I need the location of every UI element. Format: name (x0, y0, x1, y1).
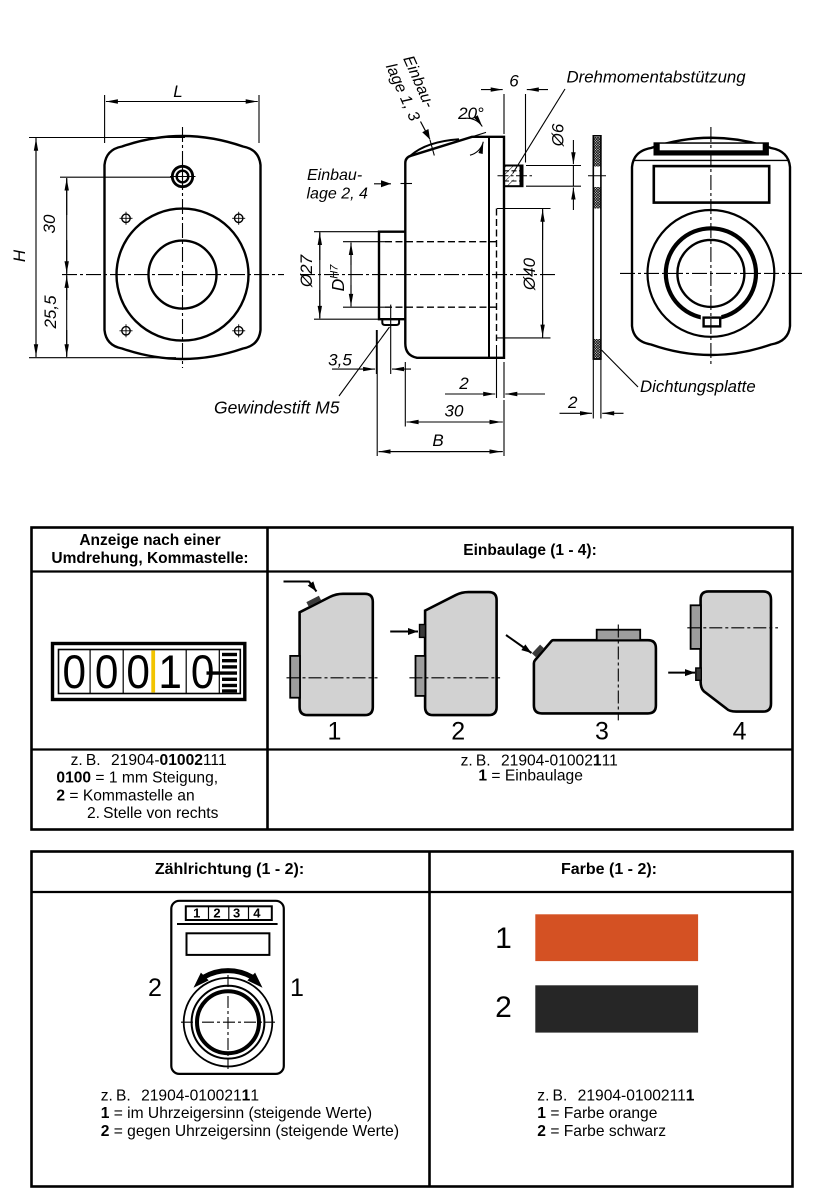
svg-text:Ø40: Ø40 (520, 257, 539, 291)
svg-text:3,5: 3,5 (328, 351, 352, 370)
svg-text:Drehmomentabstützung: Drehmomentabstützung (567, 68, 747, 87)
svg-text:1: 1 (193, 906, 200, 921)
svg-text:0: 0 (95, 647, 119, 699)
svg-text:z. B. 21904-01002111: z. B. 21904-01002111 (71, 752, 227, 769)
svg-text:25,5: 25,5 (41, 295, 60, 330)
svg-text:3: 3 (595, 718, 609, 746)
svg-text:2: 2 (458, 374, 469, 393)
svg-text:Gewindestift M5: Gewindestift M5 (214, 398, 340, 418)
svg-text:2 = gegen Uhrzeigersinn (steig: 2 = gegen Uhrzeigersinn (steigende Werte… (101, 1123, 399, 1140)
svg-text:4: 4 (733, 718, 747, 746)
svg-text:30: 30 (40, 214, 59, 233)
svg-text:z. B. 21904-01002111: z. B. 21904-01002111 (537, 1088, 695, 1105)
svg-text:Einbau-: Einbau- (307, 167, 362, 184)
svg-text:20°: 20° (457, 104, 484, 123)
svg-text:2: 2 (567, 393, 578, 412)
svg-text:Anzeige nach einer: Anzeige nach einer (79, 532, 220, 549)
svg-text:1 = im Uhrzeigersinn (steigend: 1 = im Uhrzeigersinn (steigende Werte) (101, 1105, 372, 1122)
svg-text:Dichtungsplatte: Dichtungsplatte (640, 377, 756, 396)
svg-text:1: 1 (158, 647, 182, 699)
svg-text:6: 6 (509, 72, 519, 91)
svg-text:Farbe (1 - 2):: Farbe (1 - 2): (561, 861, 657, 878)
svg-text:0: 0 (126, 647, 150, 699)
svg-text:H: H (10, 249, 29, 262)
svg-text:Umdrehung, Kommastelle:: Umdrehung, Kommastelle: (51, 550, 248, 567)
svg-text:Ø27: Ø27 (297, 254, 316, 288)
svg-text:2 = Farbe schwarz: 2 = Farbe schwarz (537, 1123, 666, 1140)
svg-text:2: 2 (495, 991, 512, 1024)
svg-text:1: 1 (290, 974, 304, 1002)
svg-text:Zählrichtung (1 - 2):: Zählrichtung (1 - 2): (155, 861, 304, 878)
svg-text:2 = Kommastelle an: 2 = Kommastelle an (56, 787, 194, 804)
svg-text:1: 1 (495, 922, 512, 955)
svg-text:2: 2 (148, 974, 162, 1002)
svg-text:3: 3 (233, 906, 240, 921)
svg-text:B: B (432, 431, 443, 450)
svg-text:1 = Farbe orange: 1 = Farbe orange (537, 1105, 657, 1122)
svg-text:1 = Einbaulage: 1 = Einbaulage (478, 768, 583, 785)
svg-text:L: L (173, 82, 182, 101)
svg-text:30: 30 (445, 402, 464, 421)
svg-text:0: 0 (63, 647, 87, 699)
svg-text:Einbaulage (1 - 4):: Einbaulage (1 - 4): (463, 542, 597, 559)
svg-text:2: 2 (451, 718, 465, 746)
svg-text:2: 2 (213, 906, 220, 921)
svg-text:0100 = 1 mm Steigung,: 0100 = 1 mm Steigung, (56, 770, 218, 787)
svg-text:z. B. 21904-01002111: z. B. 21904-01002111 (101, 1088, 259, 1105)
svg-text:lage 2, 4: lage 2, 4 (307, 186, 368, 203)
svg-text:Ø6: Ø6 (549, 123, 568, 147)
svg-text:1: 1 (328, 718, 342, 746)
svg-text:2. Stelle von rechts: 2. Stelle von rechts (87, 805, 219, 822)
svg-text:4: 4 (253, 906, 261, 921)
